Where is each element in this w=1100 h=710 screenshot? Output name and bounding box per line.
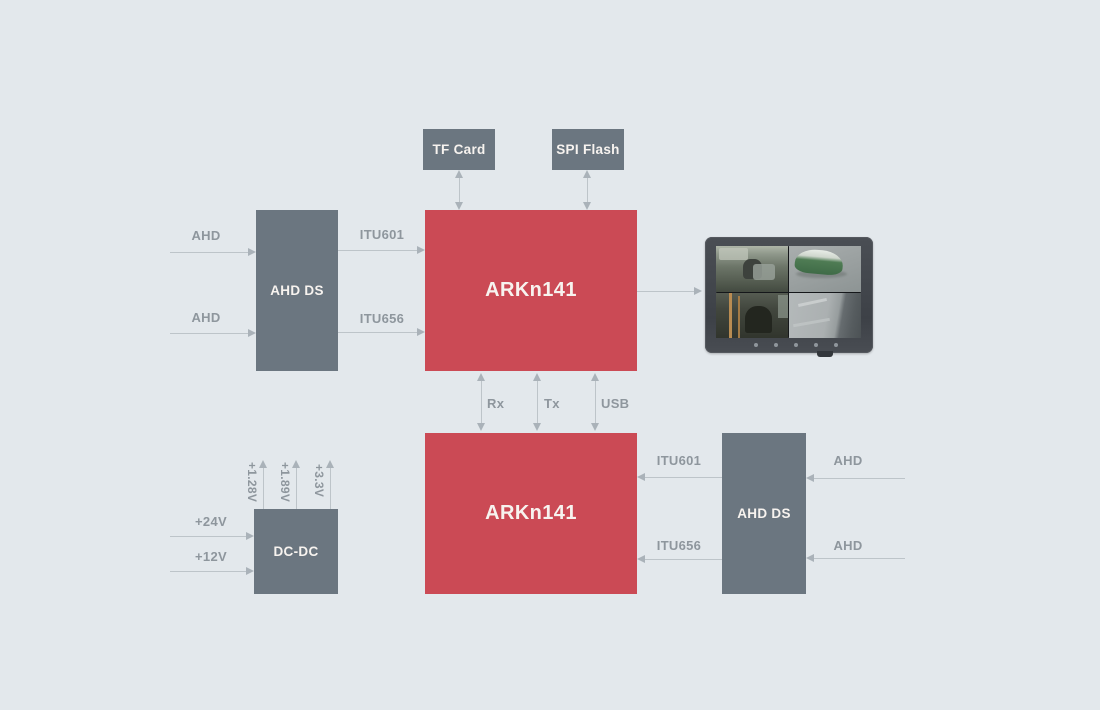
block-spi-flash-label: SPI Flash (556, 142, 619, 157)
arrow-rx-link (481, 381, 482, 423)
arrow-12v-input (170, 571, 246, 572)
block-arkn141-bottom: ARKn141 (425, 433, 637, 594)
block-dc-dc-label: DC-DC (274, 544, 319, 559)
label-itu656-top: ITU656 (360, 311, 404, 326)
arrowhead-up-icon (591, 373, 599, 381)
arrow-ahd-input-right-1 (814, 478, 905, 479)
window-highlight (719, 248, 748, 260)
arrow-3v3-output (330, 468, 331, 509)
arrowhead-up-icon (259, 460, 267, 468)
road-marking-shape (798, 298, 827, 307)
camera-view-bus-seats (716, 293, 788, 339)
monitor-button (814, 343, 818, 347)
arrowhead-down-icon (583, 202, 591, 210)
arrowhead-down-icon (591, 423, 599, 431)
monitor-button (794, 343, 798, 347)
window-highlight (778, 295, 788, 318)
block-dc-dc: DC-DC (254, 509, 338, 594)
block-arkn141-top: ARKn141 (425, 210, 637, 371)
arrow-itu656-top (338, 332, 417, 333)
arrow-ahd-input-2 (170, 333, 248, 334)
monitor-button (834, 343, 838, 347)
block-ahd-ds-left: AHD DS (256, 210, 338, 371)
arrow-1v89-output (296, 468, 297, 509)
arrowhead-right-icon (246, 532, 254, 540)
arrowhead-down-icon (455, 202, 463, 210)
arrowhead-left-icon (637, 473, 645, 481)
arrow-itu656-bottom (645, 559, 722, 560)
block-arkn141-bottom-label: ARKn141 (485, 502, 577, 525)
label-1v89: +1.89V (278, 462, 292, 502)
arrow-usb-link (595, 381, 596, 423)
arrowhead-right-icon (417, 246, 425, 254)
block-ahd-ds-right: AHD DS (722, 433, 806, 594)
block-tf-card: TF Card (423, 129, 495, 170)
arrowhead-left-icon (806, 474, 814, 482)
label-3v3: +3.3V (312, 464, 326, 497)
label-ahd-input-right-2: AHD (833, 538, 862, 553)
arrow-1v28-output (263, 468, 264, 509)
quad-view-monitor (705, 237, 873, 353)
label-12v: +12V (195, 549, 227, 564)
arrowhead-right-icon (246, 567, 254, 575)
label-ahd-input-2: AHD (191, 310, 220, 325)
arrow-spi-flash-link (587, 178, 588, 202)
handrail-pole-shape (729, 293, 732, 339)
arrowhead-right-icon (694, 287, 702, 295)
arrow-ahd-input-right-2 (814, 558, 905, 559)
label-1v28: +1.28V (245, 462, 259, 502)
arrow-24v-input (170, 536, 246, 537)
arrow-itu601-bottom (645, 477, 722, 478)
block-ahd-ds-left-label: AHD DS (270, 283, 324, 298)
monitor-button (774, 343, 778, 347)
label-usb: USB (601, 396, 629, 411)
arrowhead-up-icon (455, 170, 463, 178)
arrowhead-right-icon (248, 329, 256, 337)
block-diagram: TF Card SPI Flash AHD DS ARKn141 ARKn141… (0, 0, 1100, 710)
label-itu601-top: ITU601 (360, 227, 404, 242)
block-arkn141-top-label: ARKn141 (485, 279, 577, 302)
seat-shape (745, 306, 772, 333)
road-marking-shape (793, 317, 830, 326)
arrow-display-output (637, 291, 694, 292)
monitor-button (754, 343, 758, 347)
arrowhead-up-icon (292, 460, 300, 468)
arrow-tx-link (537, 381, 538, 423)
arrowhead-up-icon (326, 460, 334, 468)
arrowhead-up-icon (477, 373, 485, 381)
monitor-screen (716, 246, 861, 338)
block-spi-flash: SPI Flash (552, 129, 624, 170)
label-ahd-input-right-1: AHD (833, 453, 862, 468)
arrow-ahd-input-1 (170, 252, 248, 253)
label-tx: Tx (544, 396, 560, 411)
arrowhead-right-icon (248, 248, 256, 256)
console-shape (753, 264, 775, 279)
monitor-stand-tab (817, 351, 833, 357)
arrowhead-up-icon (533, 373, 541, 381)
camera-view-bus-interior-front (716, 246, 788, 292)
block-ahd-ds-right-label: AHD DS (737, 506, 791, 521)
label-24v: +24V (195, 514, 227, 529)
label-itu656-bottom: ITU656 (657, 538, 701, 553)
block-tf-card-label: TF Card (432, 142, 485, 157)
green-bus-shape (794, 248, 843, 276)
camera-view-road (789, 293, 861, 339)
handrail-pole-shape (738, 296, 740, 338)
label-rx: Rx (487, 396, 504, 411)
arrowhead-down-icon (533, 423, 541, 431)
arrow-itu601-top (338, 250, 417, 251)
arrowhead-right-icon (417, 328, 425, 336)
arrowhead-left-icon (637, 555, 645, 563)
label-itu601-bottom: ITU601 (657, 453, 701, 468)
arrow-tf-card-link (459, 178, 460, 202)
label-ahd-input-1: AHD (191, 228, 220, 243)
camera-view-bus-exterior (789, 246, 861, 292)
arrowhead-down-icon (477, 423, 485, 431)
arrowhead-up-icon (583, 170, 591, 178)
arrowhead-left-icon (806, 554, 814, 562)
